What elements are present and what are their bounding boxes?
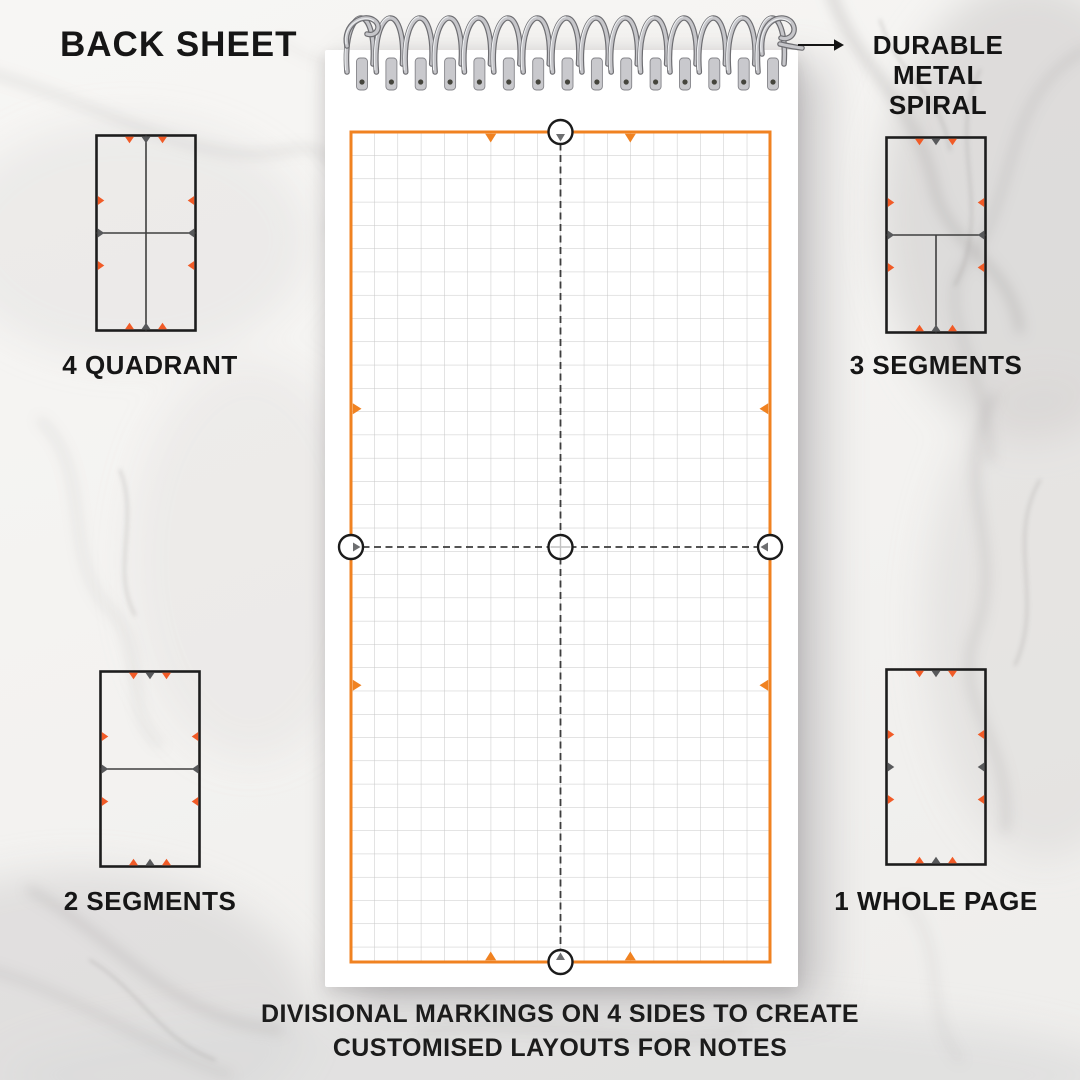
spiral-binding-icon — [330, 4, 815, 104]
spiral-wire — [345, 17, 802, 72]
page-title: BACK SHEET — [60, 25, 298, 65]
arrow-right-icon — [798, 36, 846, 54]
grid-page — [325, 50, 798, 987]
layout-diagram-4-quadrant — [95, 134, 197, 332]
label-2-segments: 2 SEGMENTS — [40, 886, 260, 917]
spiral-callout-line2: SPIRAL — [840, 90, 1036, 120]
label-4-quadrant: 4 QUADRANT — [40, 350, 260, 381]
label-3-segments: 3 SEGMENTS — [830, 350, 1042, 381]
caption-line2: CUSTOMISED LAYOUTS FOR NOTES — [210, 1032, 910, 1066]
layout-diagram-1-whole-page — [885, 668, 987, 866]
spiral-callout-line1: DURABLE METAL — [840, 30, 1036, 90]
divider-lines — [887, 235, 986, 333]
layout-diagram-3-segments — [885, 136, 987, 334]
layout-diagram-2-segments — [99, 670, 201, 868]
spiral-callout: DURABLE METAL SPIRAL — [840, 30, 1036, 120]
caption-line1: DIVISIONAL MARKINGS ON 4 SIDES TO CREATE — [210, 998, 910, 1032]
divider-lines — [97, 136, 196, 331]
notepad-sheet — [325, 50, 798, 987]
product-infographic: BACK SHEET — [0, 0, 1080, 1080]
spiral-tabs — [357, 58, 779, 90]
label-1-whole-page: 1 WHOLE PAGE — [824, 886, 1048, 917]
bottom-caption: DIVISIONAL MARKINGS ON 4 SIDES TO CREATE… — [210, 998, 910, 1065]
